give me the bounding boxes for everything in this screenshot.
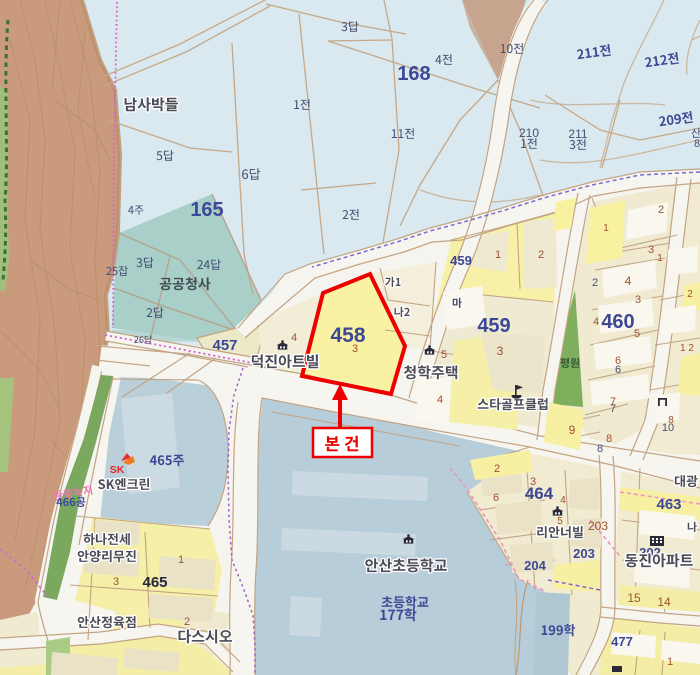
svg-text:4: 4 xyxy=(437,394,443,406)
svg-text:1 2: 1 2 xyxy=(680,343,694,354)
svg-text:15: 15 xyxy=(627,591,641,605)
svg-text:459: 459 xyxy=(450,253,472,268)
svg-text:4: 4 xyxy=(291,332,297,344)
svg-text:4: 4 xyxy=(593,316,599,328)
svg-text:2: 2 xyxy=(538,249,544,261)
svg-text:204: 204 xyxy=(524,558,546,573)
svg-text:2: 2 xyxy=(687,289,693,300)
svg-text:5: 5 xyxy=(441,349,447,361)
svg-text:3: 3 xyxy=(648,244,654,256)
svg-text:1: 1 xyxy=(178,554,184,566)
svg-text:458: 458 xyxy=(330,324,365,347)
svg-text:6: 6 xyxy=(615,364,621,376)
svg-text:8: 8 xyxy=(606,433,612,445)
svg-text:203: 203 xyxy=(573,546,595,561)
svg-text:464: 464 xyxy=(525,484,554,503)
svg-text:9: 9 xyxy=(569,423,576,437)
svg-text:211: 211 xyxy=(568,127,587,141)
svg-text:457: 457 xyxy=(212,337,237,354)
svg-text:477: 477 xyxy=(611,634,633,649)
svg-text:210: 210 xyxy=(519,126,539,140)
svg-text:2: 2 xyxy=(658,204,664,216)
svg-text:7: 7 xyxy=(610,403,616,415)
svg-text:SK: SK xyxy=(110,464,125,476)
svg-text:3: 3 xyxy=(497,344,504,358)
svg-text:14: 14 xyxy=(657,595,671,609)
svg-text:2: 2 xyxy=(184,616,190,628)
svg-text:203: 203 xyxy=(588,519,608,533)
svg-text:3: 3 xyxy=(352,343,358,355)
svg-text:2: 2 xyxy=(494,463,500,475)
svg-text:1: 1 xyxy=(667,656,673,668)
svg-text:2: 2 xyxy=(592,277,598,289)
svg-text:6: 6 xyxy=(493,492,499,504)
svg-text:463: 463 xyxy=(656,496,681,513)
svg-text:4: 4 xyxy=(625,274,632,288)
svg-text:4: 4 xyxy=(560,495,566,506)
svg-text:1: 1 xyxy=(657,253,663,264)
svg-text:5: 5 xyxy=(634,328,640,340)
svg-text:8: 8 xyxy=(597,443,603,455)
svg-text:1: 1 xyxy=(495,249,501,261)
svg-text:3: 3 xyxy=(635,294,641,306)
svg-text:465: 465 xyxy=(142,574,167,591)
svg-text:3: 3 xyxy=(113,576,119,588)
svg-text:460: 460 xyxy=(601,311,634,333)
svg-text:168: 168 xyxy=(397,63,430,85)
svg-text:8: 8 xyxy=(694,138,700,150)
svg-text:8: 8 xyxy=(668,415,674,426)
svg-text:165: 165 xyxy=(190,199,223,221)
svg-text:1: 1 xyxy=(603,223,609,234)
svg-text:459: 459 xyxy=(477,315,510,337)
